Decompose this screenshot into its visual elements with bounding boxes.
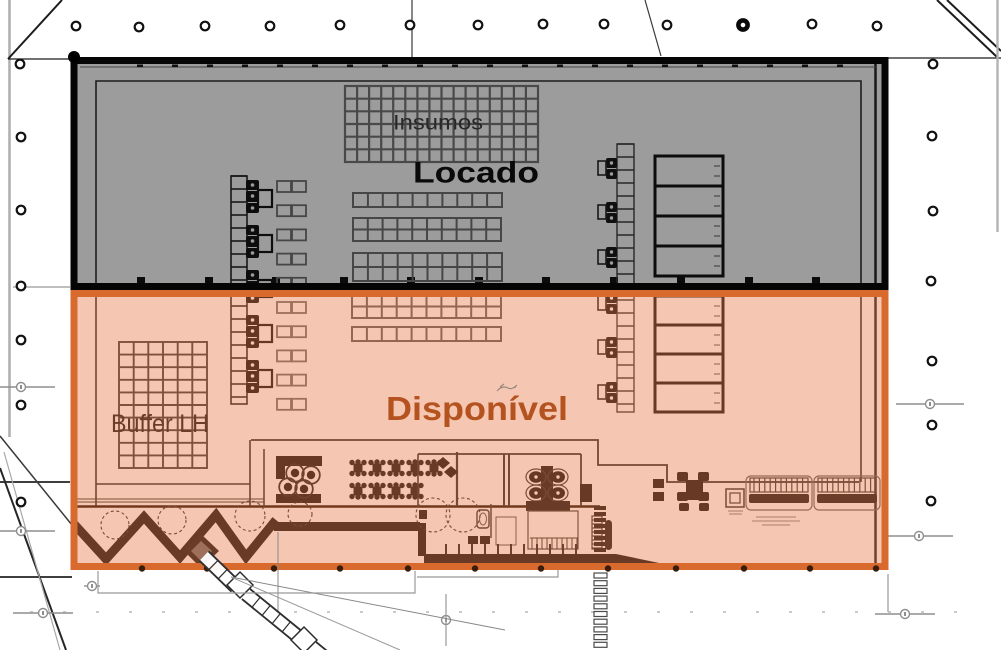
svg-text:Disponível: Disponível: [386, 391, 568, 428]
svg-text:Locado: Locado: [413, 157, 539, 190]
